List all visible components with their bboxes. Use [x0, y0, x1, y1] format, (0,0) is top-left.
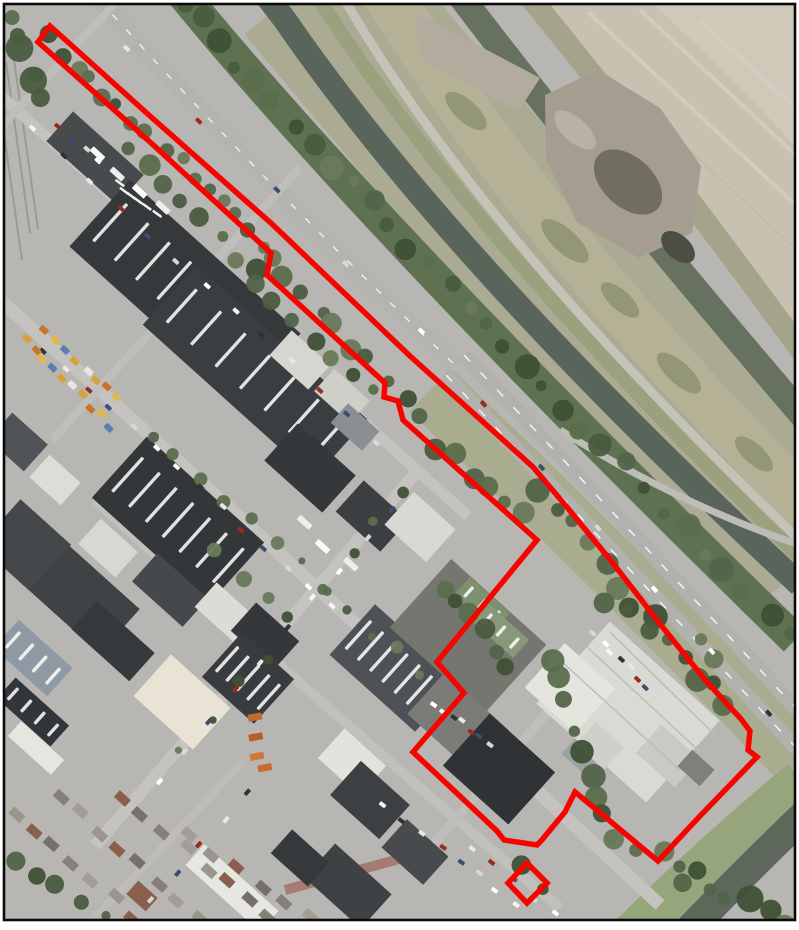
tree	[236, 571, 252, 587]
tree	[262, 292, 280, 310]
tree	[28, 867, 46, 885]
tree	[284, 313, 299, 328]
tree	[709, 557, 734, 582]
tree	[233, 675, 245, 687]
tree	[178, 152, 190, 164]
tree	[121, 142, 134, 155]
tree	[515, 354, 540, 379]
tree	[415, 670, 424, 679]
tree	[496, 658, 514, 676]
tree	[101, 911, 110, 920]
tree	[445, 276, 461, 292]
tree	[475, 618, 495, 638]
tree	[349, 548, 359, 558]
tree	[368, 516, 378, 526]
tree	[737, 885, 764, 912]
tree	[379, 217, 394, 232]
tree	[425, 256, 437, 268]
tree	[207, 28, 232, 53]
tree	[465, 302, 477, 314]
tree	[480, 317, 492, 329]
tree	[194, 472, 207, 485]
tree	[364, 190, 385, 211]
tree	[395, 239, 417, 261]
tree	[289, 119, 304, 134]
image-margin	[0, 0, 799, 3]
tree	[139, 154, 161, 176]
tree	[317, 584, 328, 595]
tree	[172, 194, 186, 208]
tree	[298, 557, 305, 564]
tree	[74, 895, 89, 910]
tree	[346, 368, 360, 382]
tree	[569, 726, 580, 737]
tree	[263, 655, 273, 665]
tree	[6, 34, 34, 62]
tree	[246, 275, 264, 293]
image-margin	[0, 0, 3, 930]
tree	[617, 452, 635, 470]
tree	[227, 252, 243, 268]
tree	[167, 448, 179, 460]
tree	[342, 605, 351, 614]
tree	[207, 543, 222, 558]
tree	[552, 400, 573, 421]
tree	[555, 691, 572, 708]
tree	[263, 592, 275, 604]
tree	[495, 339, 510, 354]
tree	[307, 333, 325, 351]
tree	[368, 384, 378, 394]
tree	[761, 604, 784, 627]
tree	[242, 69, 265, 92]
tree	[658, 508, 669, 519]
tree	[154, 175, 173, 194]
tree	[700, 550, 711, 561]
tree	[400, 390, 417, 407]
tree	[581, 764, 606, 789]
tree	[596, 435, 611, 450]
image-margin	[0, 921, 799, 930]
tree	[688, 861, 706, 879]
tree	[569, 422, 587, 440]
tree	[695, 633, 707, 645]
tree	[189, 207, 209, 227]
tree	[448, 593, 463, 608]
tree	[304, 134, 326, 156]
tree	[228, 62, 240, 74]
aerial-map-image	[0, 0, 799, 930]
tree	[673, 860, 685, 872]
tree	[640, 621, 658, 639]
tree	[411, 408, 427, 424]
tree	[547, 666, 570, 689]
tree	[570, 740, 594, 764]
tree	[282, 611, 293, 622]
tree	[193, 6, 215, 28]
tree	[217, 231, 228, 242]
tree	[638, 482, 650, 494]
tree	[717, 892, 731, 906]
tree	[175, 747, 182, 754]
tree	[261, 91, 279, 109]
tree	[6, 852, 25, 871]
tree	[391, 641, 404, 654]
tree	[323, 350, 339, 366]
tree	[677, 514, 701, 538]
tree	[621, 604, 632, 615]
tree	[348, 175, 359, 186]
tree	[5, 10, 20, 25]
tree	[536, 380, 547, 391]
tree	[704, 883, 716, 895]
map-viewport	[0, 0, 799, 930]
tree	[320, 155, 345, 180]
tree	[368, 633, 376, 641]
tree	[397, 487, 409, 499]
tree	[148, 432, 159, 443]
tree	[489, 645, 504, 660]
tree	[673, 874, 692, 893]
tree	[271, 536, 285, 550]
tree	[31, 88, 50, 107]
tree	[246, 512, 258, 524]
tree	[45, 875, 64, 894]
tree	[594, 592, 615, 613]
tree	[732, 583, 749, 600]
